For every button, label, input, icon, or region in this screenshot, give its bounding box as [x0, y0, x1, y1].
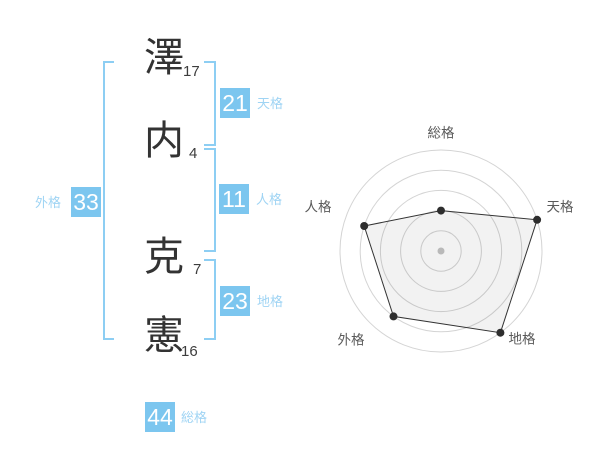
radar-axis-label-jinkaku: 人格	[305, 200, 332, 215]
radar-vertex-1	[533, 216, 541, 224]
radar-center-dot	[438, 248, 445, 255]
radar-axis-label-chikaku: 地格	[509, 332, 537, 347]
name-fortune-panel: 澤 内 克 憲 17 4 7 16 21 天格 11 人格 23 地格 33 外…	[0, 0, 600, 470]
radar-vertex-2	[496, 329, 504, 337]
radar-axis-label-tenkaku: 天格	[547, 200, 575, 215]
radar-vertex-0	[437, 207, 445, 215]
radar-plot	[360, 207, 541, 337]
radar-chart: 総格 天格 地格 外格 人格	[0, 0, 600, 470]
radar-vertex-3	[390, 312, 398, 320]
radar-axis-label-gaikaku: 外格	[338, 333, 365, 348]
radar-vertex-4	[360, 222, 368, 230]
radar-axis-label-soukaku: 総格	[428, 126, 455, 141]
